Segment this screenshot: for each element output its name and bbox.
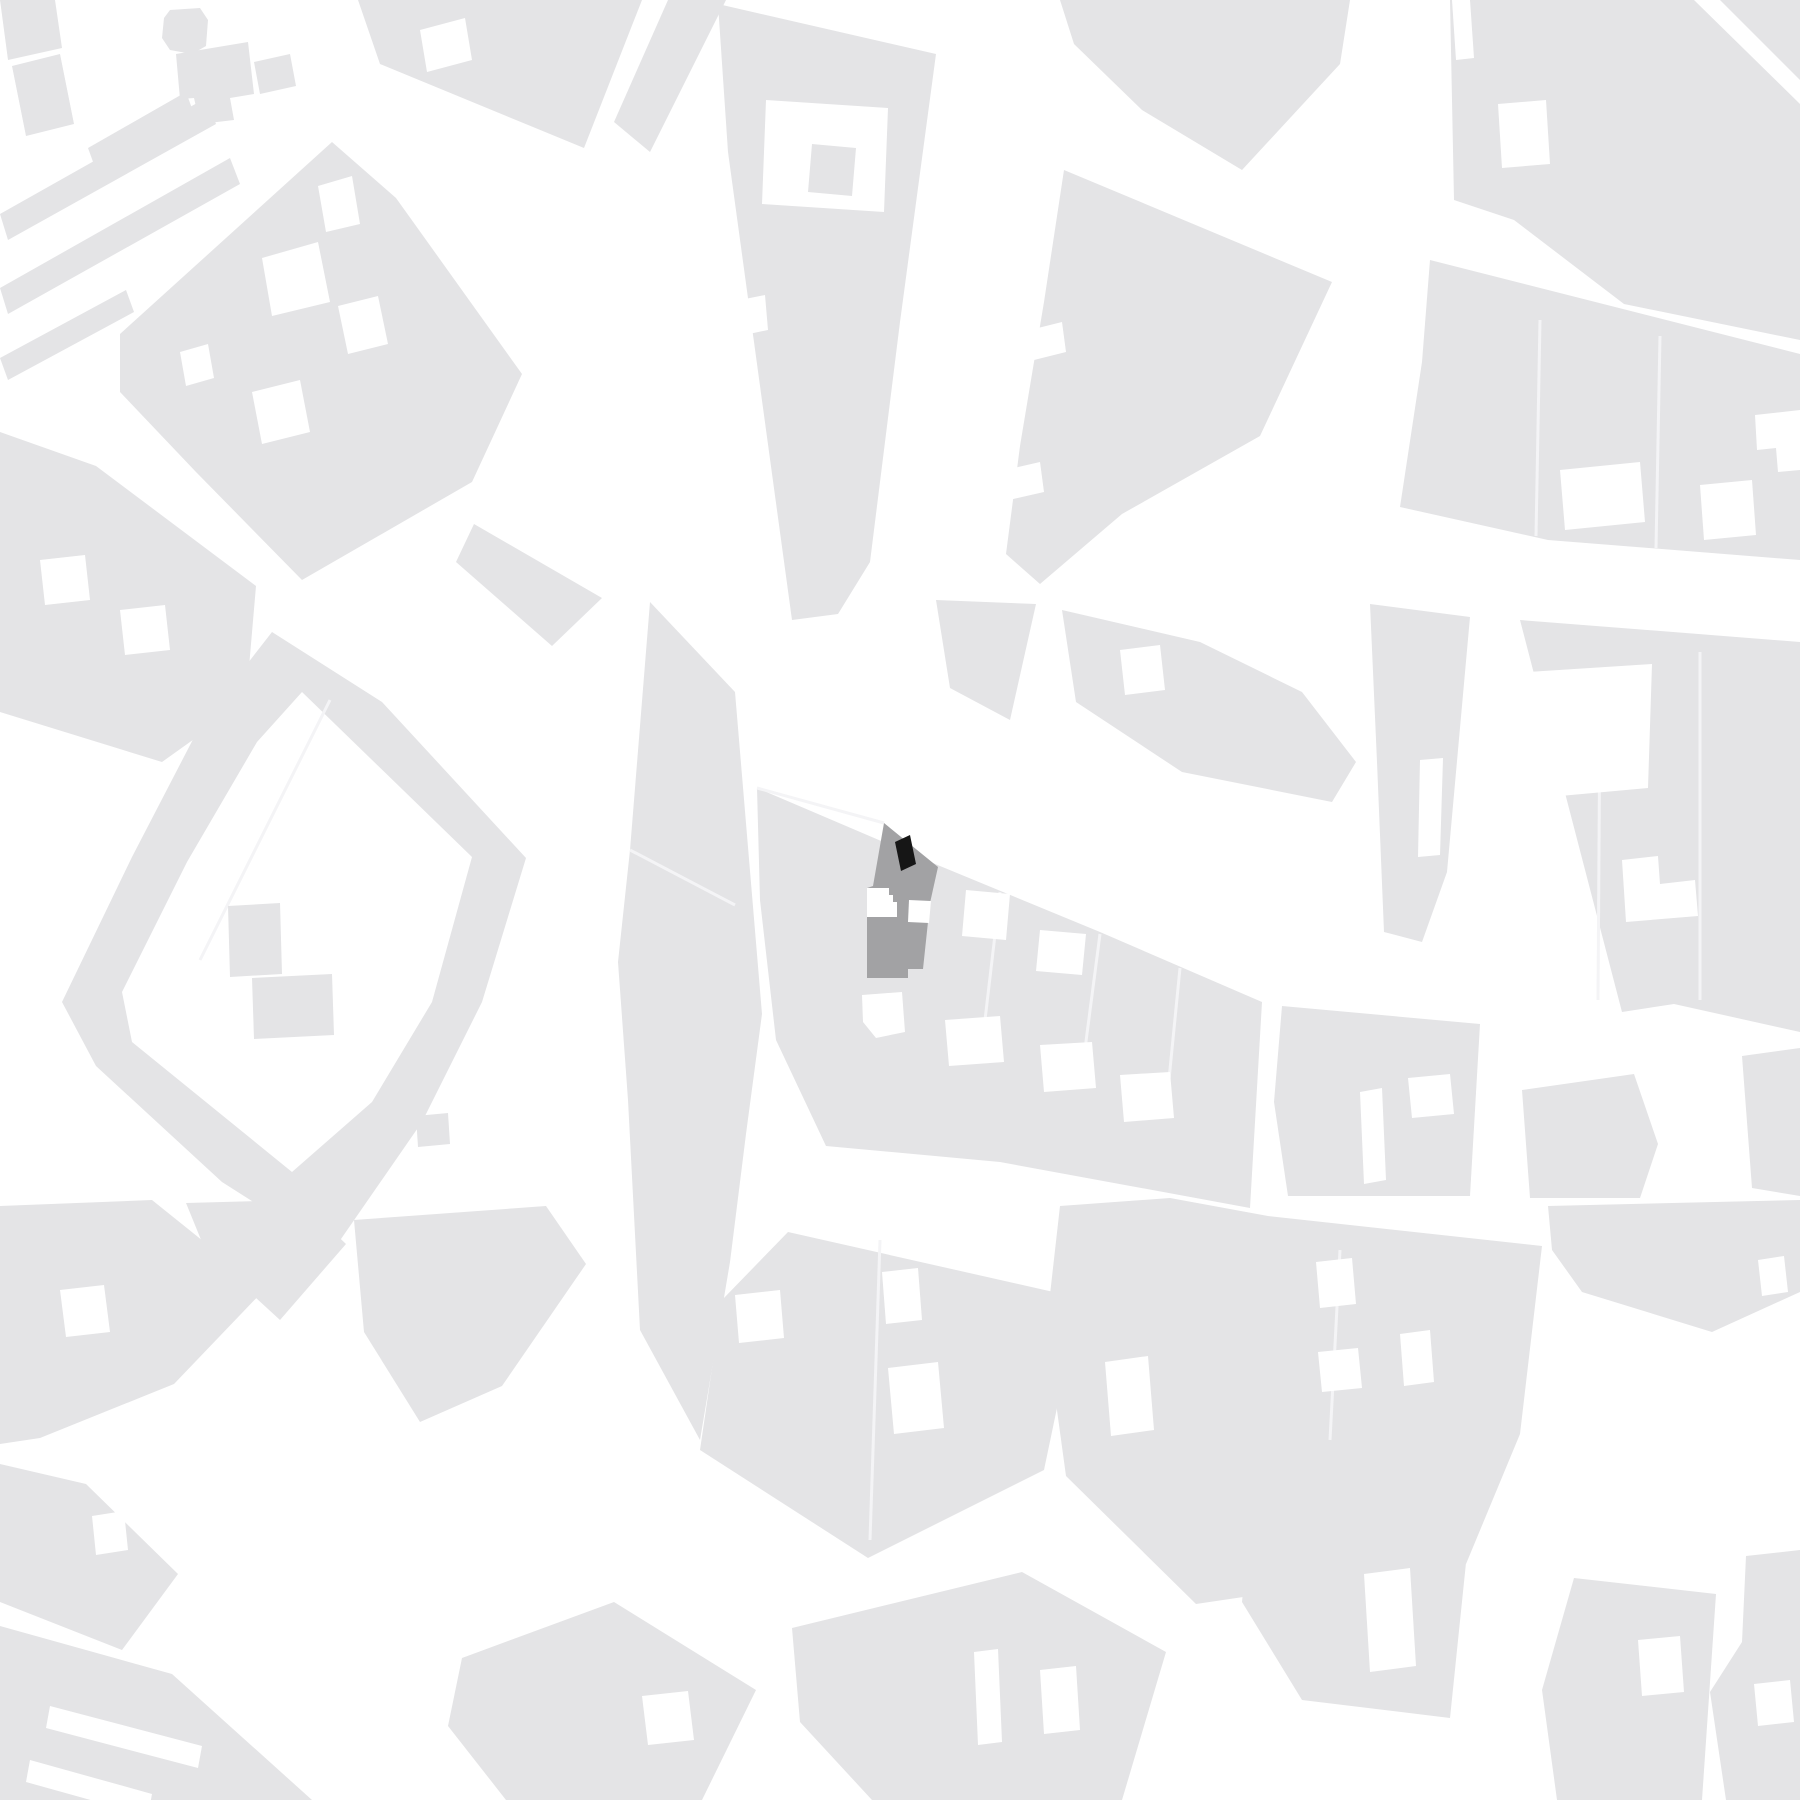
- courtyard: [92, 1511, 128, 1555]
- block-n2: [1062, 610, 1356, 802]
- courtyard: [1120, 645, 1165, 695]
- courtyard: [1360, 1088, 1386, 1184]
- block-g2: [448, 1602, 756, 1800]
- courtyard: [945, 1016, 1004, 1066]
- courtyard: [974, 1649, 1002, 1745]
- courtyard: [1754, 1680, 1794, 1726]
- block-w1: [354, 1206, 586, 1422]
- courtyard: [1040, 1666, 1080, 1734]
- courtyard-building: [252, 974, 334, 1039]
- courtyard: [735, 1290, 784, 1343]
- courtyard: [1560, 462, 1645, 530]
- courtyard: [1528, 664, 1652, 796]
- block-d-corner: [1742, 1048, 1800, 1196]
- block-ne-wedge: [1006, 170, 1332, 584]
- corner-block-a: [0, 0, 62, 60]
- courtyard: [1036, 930, 1086, 975]
- courtyard: [1105, 1356, 1154, 1436]
- courtyard: [1700, 480, 1756, 540]
- courtyard: [1318, 1348, 1362, 1392]
- courtyard: [888, 1362, 944, 1434]
- site-plan-map: [0, 0, 1800, 1800]
- courtyard: [40, 555, 90, 605]
- courtyard: [740, 295, 768, 335]
- block-e4: [1710, 1550, 1800, 1800]
- block-e3: [1542, 1578, 1716, 1800]
- courtyard: [962, 890, 1010, 940]
- block-top-center: [358, 0, 642, 148]
- courtyard-building: [416, 1113, 450, 1147]
- courtyard: [60, 1285, 110, 1337]
- courtyard-building: [808, 144, 856, 196]
- courtyard: [1120, 1072, 1174, 1122]
- courtyard: [642, 1691, 694, 1745]
- courtyard: [1040, 1042, 1096, 1092]
- courtyard: [882, 1268, 922, 1324]
- courtyard: [1638, 1636, 1684, 1696]
- courtyard: [1400, 1330, 1434, 1386]
- site-block: [757, 788, 1262, 1208]
- courtyard: [1498, 100, 1550, 168]
- courtyard-building: [228, 903, 282, 977]
- courtyard: [1758, 1256, 1788, 1296]
- courtyard: [120, 605, 170, 655]
- courtyard: [1408, 1074, 1454, 1118]
- courtyard: [1316, 1258, 1356, 1308]
- block-m1: [456, 524, 602, 646]
- block-top-ne: [1060, 0, 1350, 170]
- block-n1: [936, 600, 1036, 720]
- block-d5: [1522, 1074, 1658, 1198]
- site-courtyard-right: [908, 900, 931, 923]
- octagon-building: [162, 8, 208, 54]
- figure-ground-svg: [0, 0, 1800, 1800]
- block-f3: [0, 1464, 178, 1650]
- small-building: [254, 54, 296, 94]
- courtyard: [1364, 1568, 1416, 1672]
- block-e2: [1242, 1500, 1470, 1718]
- corner-block-b: [12, 54, 74, 136]
- courtyard: [1418, 758, 1443, 857]
